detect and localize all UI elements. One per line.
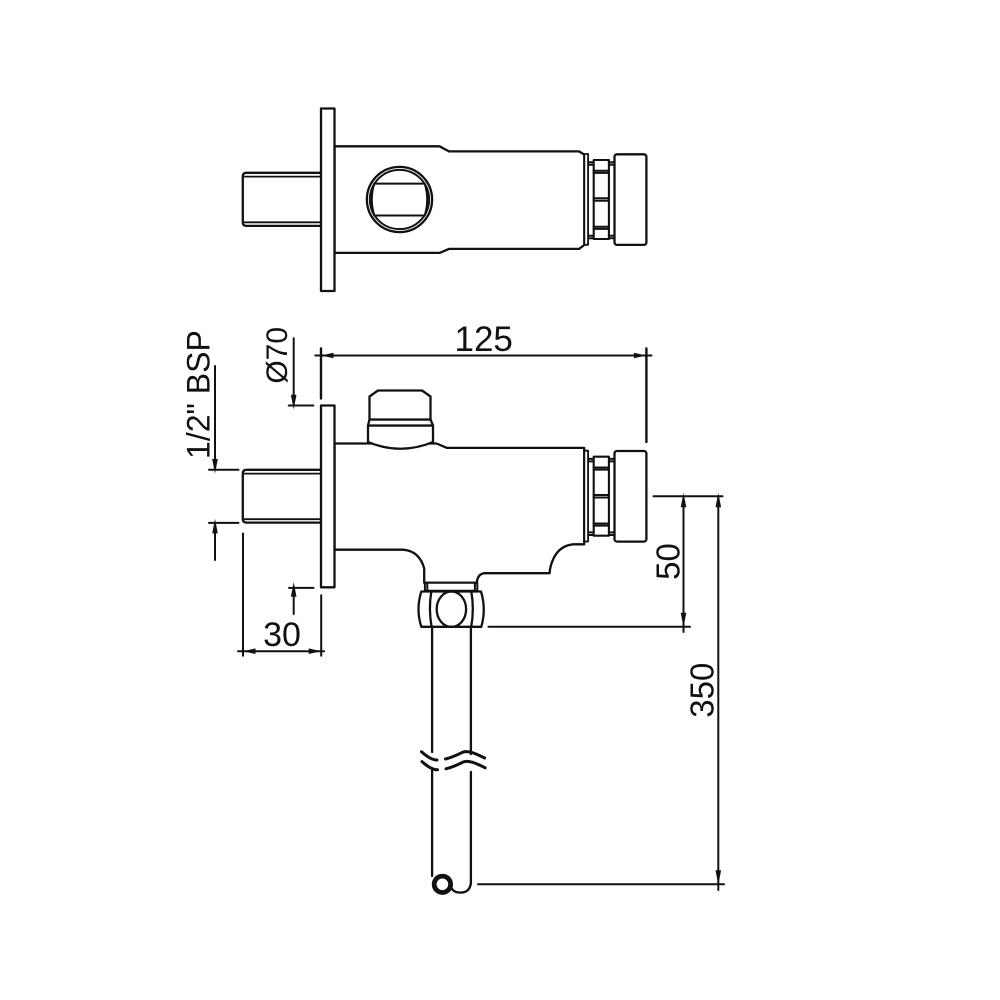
svg-text:125: 125: [454, 320, 512, 359]
svg-text:Ø70: Ø70: [261, 327, 294, 384]
svg-text:50: 50: [649, 543, 686, 580]
svg-text:1/2" BSP: 1/2" BSP: [180, 330, 216, 459]
svg-text:30: 30: [263, 616, 301, 654]
svg-text:350: 350: [683, 663, 720, 718]
